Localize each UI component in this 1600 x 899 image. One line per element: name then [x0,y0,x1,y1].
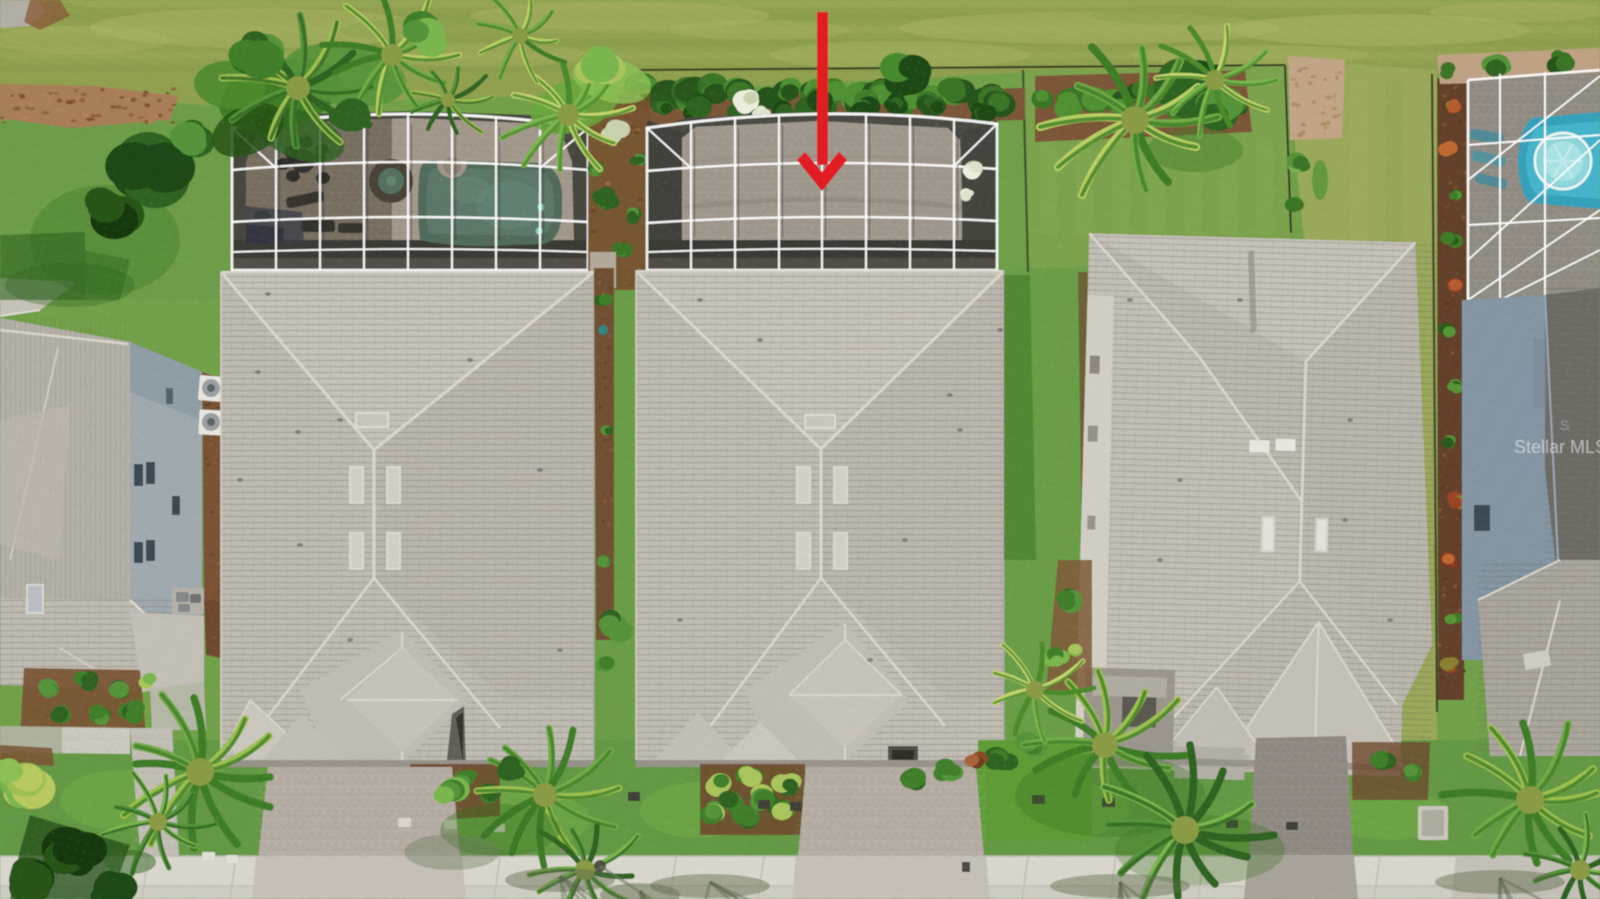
svg-text:S: S [1560,417,1569,433]
svg-text:Stellar MLS: Stellar MLS [1514,437,1600,457]
